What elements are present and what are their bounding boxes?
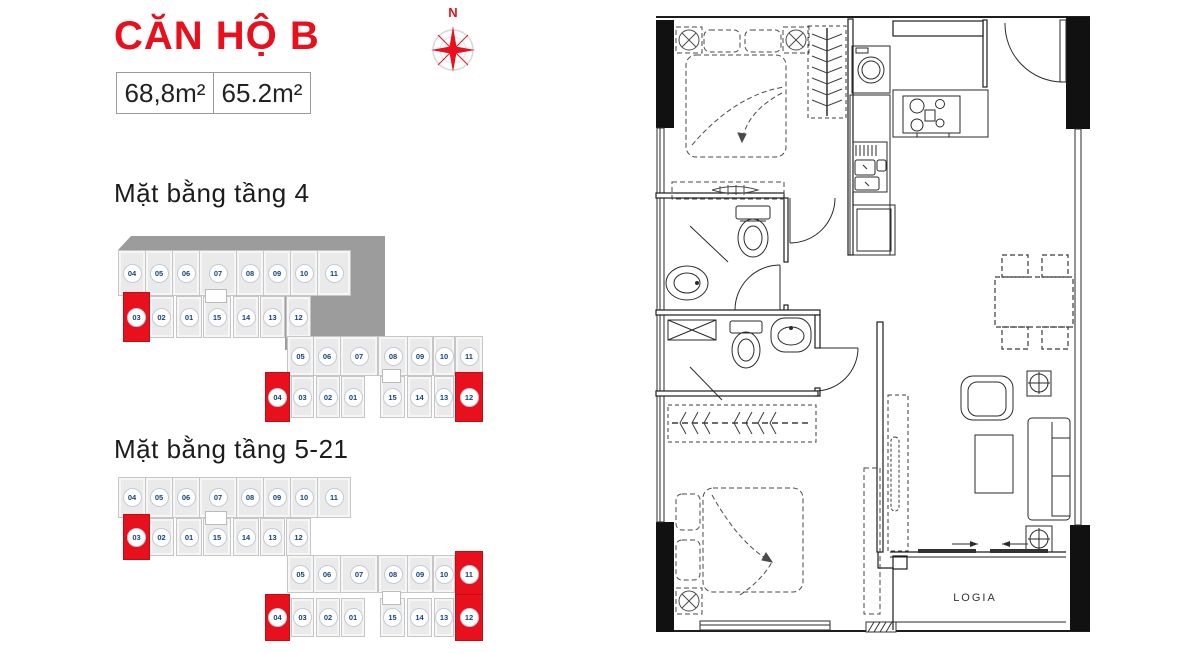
unit-number-badge: 04 <box>123 488 142 507</box>
unit-number-badge: 05 <box>150 488 169 507</box>
unit-cell-06: 06 <box>313 336 341 376</box>
unit-cell-04: 04 <box>118 477 146 518</box>
unit-number-badge: 03 <box>293 608 312 627</box>
unit-cell-02: 02 <box>316 598 340 637</box>
bathroom1-toilet-icon <box>736 206 770 257</box>
unit-number-badge: 02 <box>152 528 171 547</box>
compass-north-label: N <box>425 6 481 20</box>
unit-number-badge: 01 <box>344 388 363 407</box>
bedroom2-closet-rail <box>668 405 816 442</box>
unit-cell-13: 13 <box>434 598 454 637</box>
area-value-1: 68,8m² <box>116 72 214 114</box>
unit-number-badge: 11 <box>325 264 344 283</box>
unit-number-badge: 06 <box>318 565 337 584</box>
logia-label: LOGIA <box>953 592 997 604</box>
unit-number-badge: 08 <box>241 488 260 507</box>
bedroom1-bed-icon <box>672 27 809 199</box>
unit-cell-02: 02 <box>149 296 174 338</box>
unit-number-badge: 01 <box>180 528 199 547</box>
compass-star <box>425 20 481 78</box>
unit-number-badge: 15 <box>208 308 227 327</box>
unit-number-badge: 13 <box>263 308 282 327</box>
unit-cell-06: 06 <box>172 477 200 518</box>
unit-cell-14: 14 <box>233 518 259 556</box>
unit-number-badge: 08 <box>384 565 403 584</box>
unit-number-badge: 07 <box>209 488 228 507</box>
unit-number-badge: 07 <box>209 264 228 283</box>
unit-number-badge: 10 <box>435 347 454 366</box>
kitchen-sink-icon <box>850 95 895 255</box>
unit-number-badge: 05 <box>291 347 310 366</box>
unit-cell-02: 02 <box>316 376 340 418</box>
unit-cell-11: 11 <box>455 336 483 376</box>
elevator-notch <box>382 369 401 383</box>
unit-number-badge: 08 <box>241 264 260 283</box>
unit-number-badge: 01 <box>180 308 199 327</box>
unit-cell-05: 05 <box>287 555 314 593</box>
unit-number-badge: 02 <box>319 608 338 627</box>
unit-number-badge: 02 <box>152 308 171 327</box>
unit-cell-12: 12 <box>286 296 311 338</box>
bathroom1-sink-icon <box>666 266 708 300</box>
unit-cell-07: 07 <box>340 555 378 593</box>
unit-number-badge: 07 <box>350 347 369 366</box>
area-value-2: 65.2m² <box>214 72 311 114</box>
unit-cell-11: 11 <box>317 250 351 296</box>
unit-cell-04: 04 <box>265 372 290 422</box>
sofa-icon <box>1028 418 1070 520</box>
unit-number-badge: 11 <box>460 565 479 584</box>
unit-number-badge: 14 <box>237 308 256 327</box>
unit-number-badge: 15 <box>208 528 227 547</box>
sliding-door-icon <box>890 541 1066 557</box>
unit-cell-01: 01 <box>176 296 202 338</box>
hatched-wall-block <box>866 622 896 632</box>
unit-number-badge: 04 <box>268 388 287 407</box>
unit-number-badge: 09 <box>411 565 430 584</box>
unit-cell-06: 06 <box>172 250 200 296</box>
section-heading: Mặt bằng tầng 4 <box>114 178 309 209</box>
unit-cell-05: 05 <box>287 336 314 376</box>
unit-number-badge: 12 <box>460 388 479 407</box>
unit-cell-10: 10 <box>290 477 318 518</box>
unit-number-badge: 09 <box>268 264 287 283</box>
unit-cell-09: 09 <box>263 477 291 518</box>
elevator-notch <box>205 289 227 303</box>
unit-number-badge: 10 <box>435 565 454 584</box>
unit-number-badge: 06 <box>177 264 196 283</box>
unit-cell-04: 04 <box>265 594 290 641</box>
unit-cell-13: 13 <box>434 376 454 418</box>
unit-number-badge: 07 <box>350 565 369 584</box>
area-table: 68,8m² 65.2m² <box>116 72 311 114</box>
washing-machine-icon <box>852 46 890 93</box>
unit-cell-11: 11 <box>455 551 483 597</box>
unit-cell-10: 10 <box>433 555 455 593</box>
unit-number-badge: 04 <box>123 264 142 283</box>
bedroom2-decor <box>679 553 772 611</box>
unit-number-badge: 03 <box>293 388 312 407</box>
unit-cell-03: 03 <box>123 514 150 560</box>
elevator-notch <box>382 591 401 605</box>
unit-number-badge: 11 <box>460 347 479 366</box>
unit-number-badge: 10 <box>295 488 314 507</box>
apartment-floor-plan: LOGIA <box>642 6 1134 648</box>
unit-cell-10: 10 <box>433 336 455 376</box>
unit-cell-03: 03 <box>291 598 314 637</box>
stove-icon <box>893 90 988 137</box>
unit-cell-03: 03 <box>291 376 314 418</box>
brochure-page: CĂN HỘ B 68,8m² 65.2m² N Mặt bằng tầng 4… <box>0 0 1200 654</box>
unit-cell-13: 13 <box>260 296 285 338</box>
unit-number-badge: 12 <box>289 528 308 547</box>
building-floor-diagram: 0405060708091011030201151413120506070809… <box>115 472 487 638</box>
outer-walls <box>656 17 1090 631</box>
unit-cell-11: 11 <box>317 477 351 518</box>
unit-number-badge: 02 <box>319 388 338 407</box>
exterior-windows <box>657 128 1081 630</box>
unit-number-badge: 06 <box>318 347 337 366</box>
unit-cell-12: 12 <box>455 372 483 422</box>
unit-number-badge: 05 <box>150 264 169 283</box>
unit-cell-01: 01 <box>341 598 365 637</box>
bedroom2-bed-icon <box>676 468 880 614</box>
unit-cell-14: 14 <box>407 376 432 418</box>
unit-cell-09: 09 <box>263 250 291 296</box>
unit-cell-01: 01 <box>176 518 202 556</box>
unit-number-badge: 14 <box>410 608 429 627</box>
unit-number-badge: 13 <box>263 528 282 547</box>
unit-cell-12: 12 <box>286 518 311 556</box>
unit-cell-09: 09 <box>407 336 433 376</box>
unit-cell-14: 14 <box>233 296 259 338</box>
unit-cell-12: 12 <box>455 594 483 641</box>
unit-number-badge: 08 <box>384 347 403 366</box>
unit-number-badge: 11 <box>325 488 344 507</box>
unit-number-badge: 06 <box>177 488 196 507</box>
unit-cell-08: 08 <box>236 250 264 296</box>
unit-number-badge: 03 <box>127 528 146 547</box>
unit-number-badge: 14 <box>410 388 429 407</box>
apartment-title: CĂN HỘ B <box>114 14 320 59</box>
structural-columns <box>656 17 1090 632</box>
unit-cell-06: 06 <box>313 555 341 593</box>
unit-number-badge: 12 <box>460 608 479 627</box>
building-floor-diagram: 0405060708091011030201151413120506070809… <box>115 232 487 418</box>
unit-cell-05: 05 <box>145 250 173 296</box>
unit-number-badge: 12 <box>289 308 308 327</box>
unit-cell-09: 09 <box>407 555 433 593</box>
floor-lamp-icons <box>1026 371 1052 552</box>
unit-number-badge: 05 <box>291 565 310 584</box>
unit-cell-08: 08 <box>378 555 408 593</box>
bathroom2-fixtures <box>668 318 811 368</box>
unit-cell-03: 03 <box>123 292 150 342</box>
unit-number-badge: 14 <box>237 528 256 547</box>
wardrobe-icon <box>808 26 846 118</box>
unit-cell-02: 02 <box>149 518 174 556</box>
unit-number-badge: 15 <box>383 608 402 627</box>
unit-number-badge: 15 <box>383 388 402 407</box>
unit-cell-14: 14 <box>407 598 432 637</box>
unit-number-badge: 01 <box>344 608 363 627</box>
unit-cell-10: 10 <box>290 250 318 296</box>
unit-number-badge: 09 <box>411 347 430 366</box>
unit-number-badge: 13 <box>435 388 453 407</box>
unit-number-badge: 13 <box>435 608 453 627</box>
unit-cell-04: 04 <box>118 250 146 296</box>
unit-number-badge: 04 <box>268 608 287 627</box>
unit-cell-05: 05 <box>145 477 173 518</box>
armchair-icon <box>961 376 1013 420</box>
unit-cell-13: 13 <box>260 518 285 556</box>
unit-number-badge: 09 <box>268 488 287 507</box>
unit-cell-08: 08 <box>236 477 264 518</box>
compass-rose-icon: N <box>425 6 481 82</box>
elevator-notch <box>205 511 227 525</box>
tv-cabinet-icon <box>888 395 908 551</box>
unit-cell-01: 01 <box>341 376 365 418</box>
section-heading: Mặt bằng tầng 5-21 <box>114 434 349 465</box>
unit-cell-07: 07 <box>340 336 378 376</box>
dining-table-icon <box>995 255 1073 349</box>
coffee-table-icon <box>975 435 1013 493</box>
unit-number-badge: 10 <box>295 264 314 283</box>
unit-number-badge: 03 <box>127 308 146 327</box>
